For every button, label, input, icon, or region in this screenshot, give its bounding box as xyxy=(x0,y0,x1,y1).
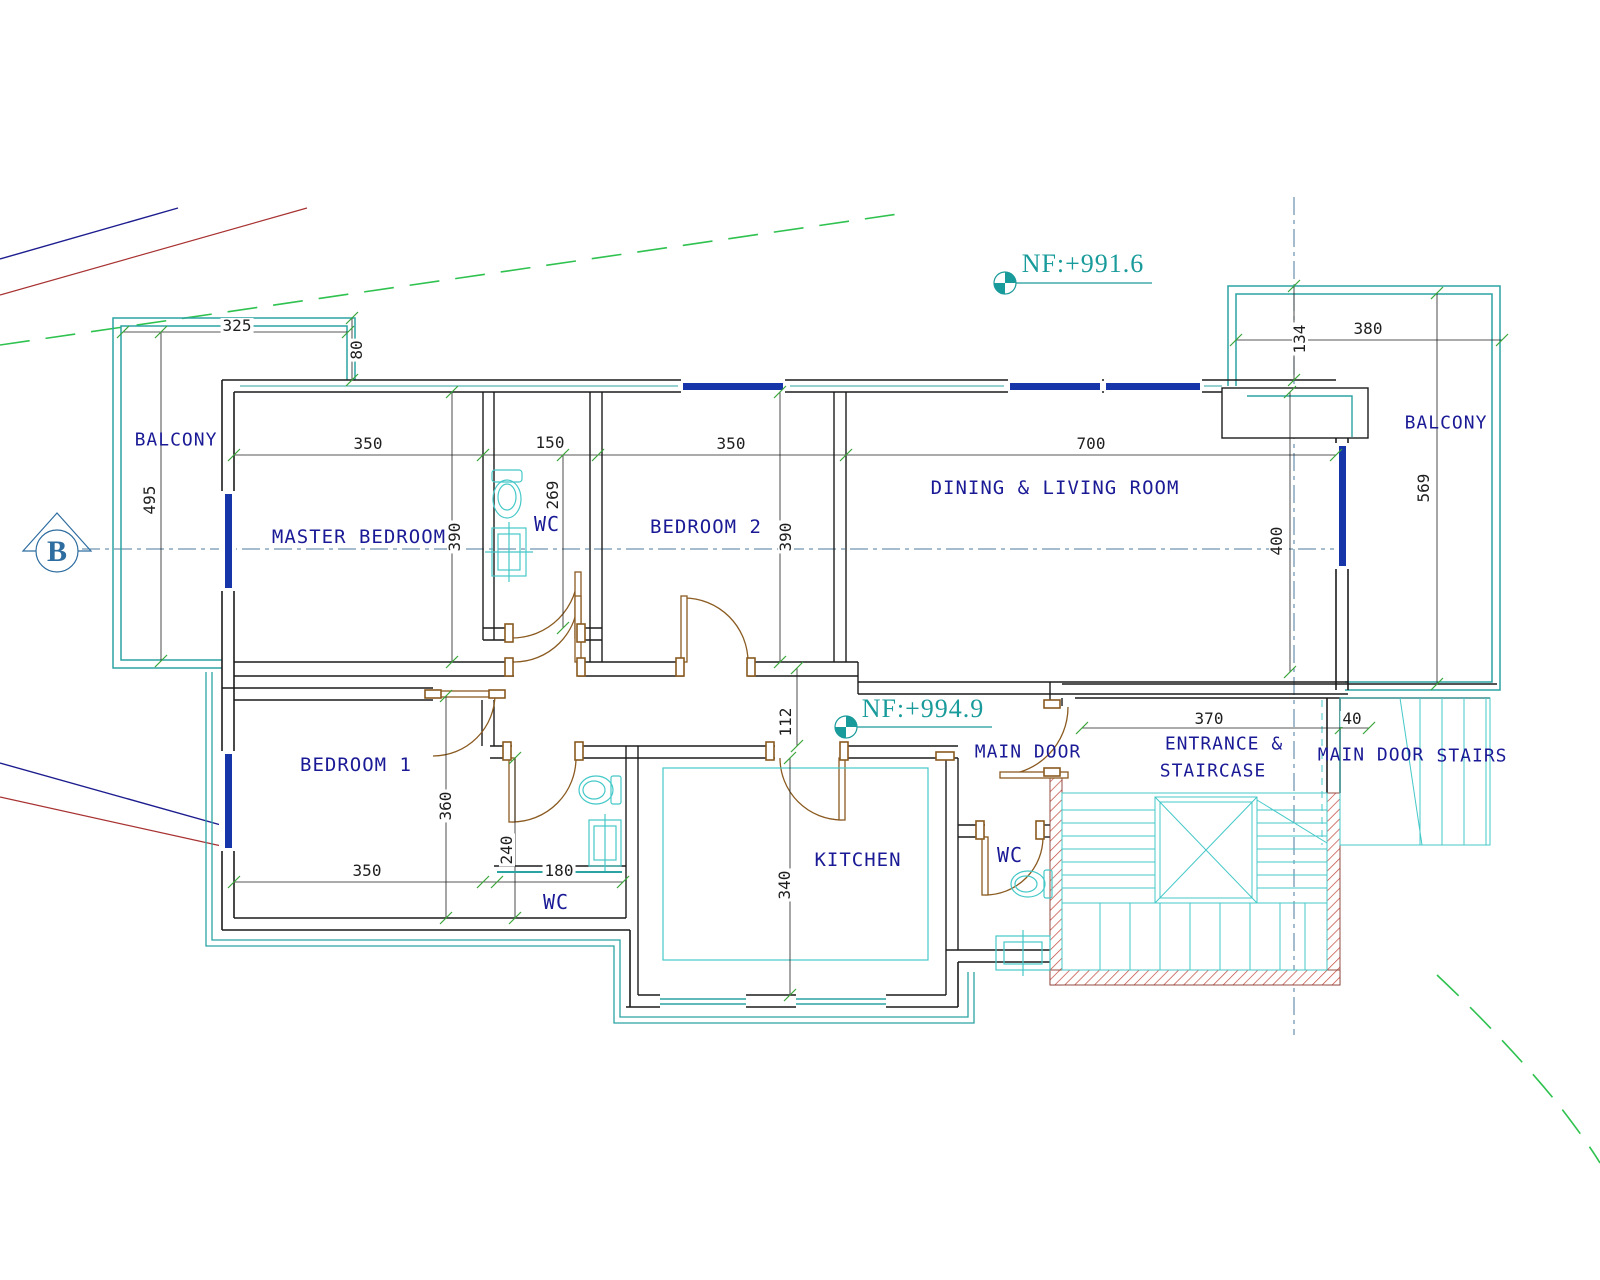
centerlines xyxy=(82,197,1348,1035)
level-marker-icon xyxy=(994,272,1152,294)
corner-parapet xyxy=(1222,388,1368,438)
kitchen-counter xyxy=(663,768,928,960)
staircase-treads xyxy=(1062,793,1327,970)
balcony-walls xyxy=(113,286,1500,690)
toilet-icon xyxy=(1011,870,1052,898)
door-jambs xyxy=(425,624,1060,839)
doors xyxy=(425,572,1068,895)
floorplan-linework xyxy=(0,0,1600,1280)
section-marker-icon xyxy=(23,513,91,572)
level-marker-icon xyxy=(835,716,992,738)
sink-icon xyxy=(589,814,621,872)
toilet-icon xyxy=(579,776,621,804)
interior-walls xyxy=(222,392,1348,995)
windows xyxy=(219,377,1350,1009)
external-stairs xyxy=(1322,698,1490,845)
sink-icon xyxy=(485,522,533,582)
sink-icon xyxy=(996,930,1050,976)
outer-boundary xyxy=(206,672,974,1023)
toilet-icon xyxy=(492,470,522,518)
fixtures xyxy=(485,470,1052,976)
site-boundary-lines xyxy=(0,208,1600,1163)
staircase-hatched-walls xyxy=(1050,775,1340,985)
floor-plan-sheet: BALCONY MASTER BEDROOM WC BEDROOM 2 DINI… xyxy=(0,0,1600,1280)
